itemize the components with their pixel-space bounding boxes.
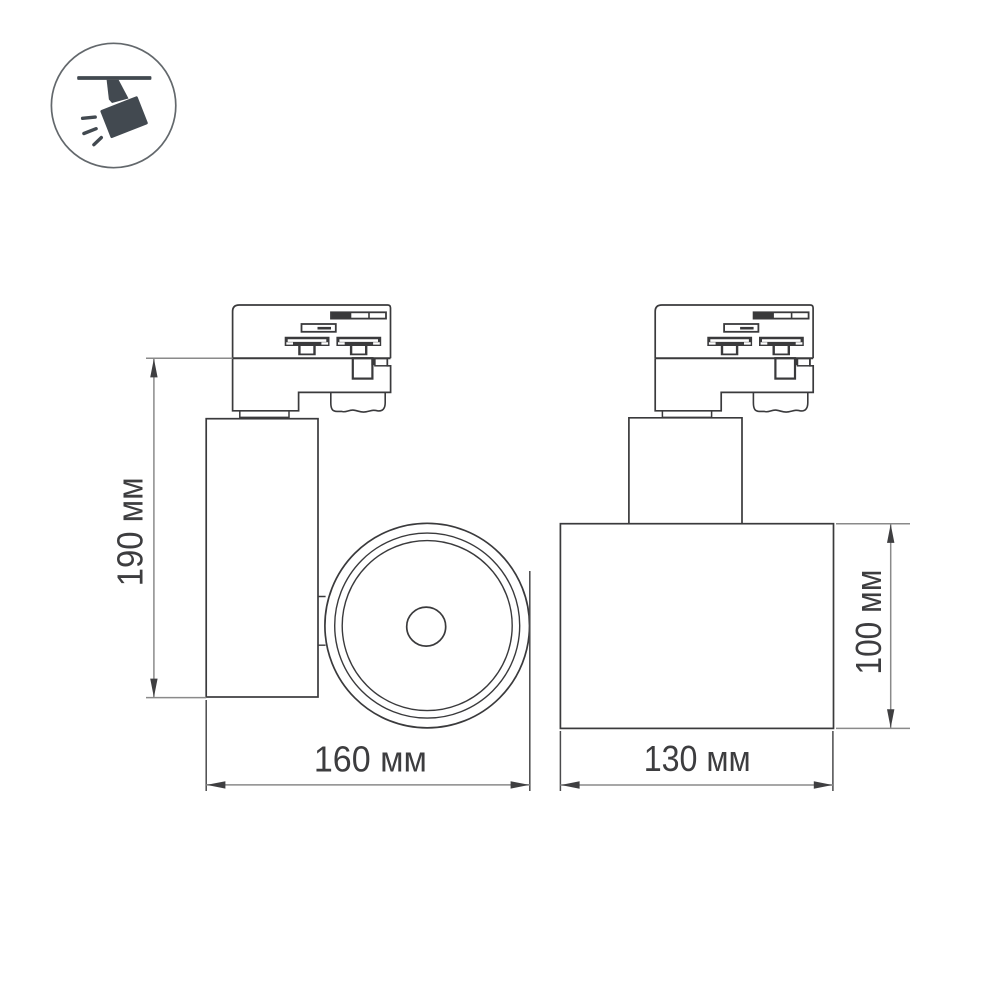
svg-text:130 мм: 130 мм	[644, 738, 751, 779]
svg-text:100 мм: 100 мм	[848, 570, 889, 675]
svg-text:190 мм: 190 мм	[110, 477, 151, 586]
svg-text:160 мм: 160 мм	[314, 739, 427, 780]
